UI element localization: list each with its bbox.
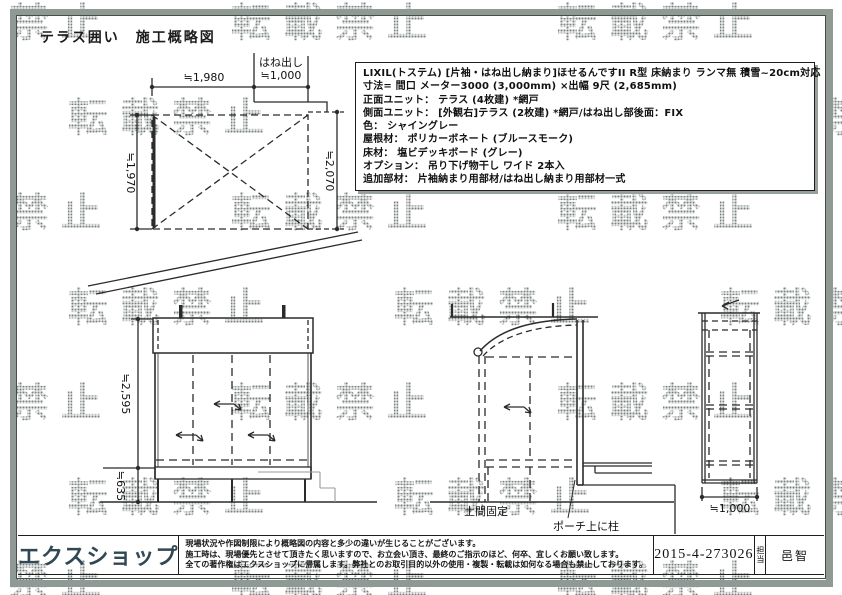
title-block: エクスショップ 現場状況や作図制限により概略図の内容と多少の違いが生じることがご…	[18, 535, 824, 575]
plan-overhang-label: はね出し	[259, 55, 303, 69]
spec-line: 側面ユニット： [外観右]テラス (2枚建) *網戸/はね出し部後面：FIX	[363, 107, 807, 120]
staff-label-cell: 担当	[755, 536, 766, 574]
staff-label: 担当	[755, 546, 765, 564]
rear-view-drawing	[698, 300, 760, 501]
front-height-upper-dim: ≒2,595	[119, 374, 132, 415]
staff-name: 邑智	[781, 547, 809, 564]
page-title: テラス囲い 施工概略図	[40, 27, 216, 47]
side-view-drawing	[430, 303, 675, 534]
spec-line: 床材： 塩ビデッキボード (グレー)	[363, 147, 807, 160]
order-number: 2015-4-273026	[654, 547, 753, 563]
side-ground-label: 土間固定	[464, 504, 508, 518]
front-elevation-drawing	[100, 305, 377, 504]
drawing-sheet: 転載禁止転載禁止転載禁止転載禁止転載禁止転載禁止転載禁止転載禁止転載禁止転載禁止…	[0, 0, 842, 595]
spec-line: LIXIL(トステム) [片袖・はね出し納まり]ほせるんですII R型 床納まり…	[363, 67, 807, 80]
rear-width-dim: ≒1,000	[710, 502, 751, 515]
spec-line: 追加部材： 片袖納まり用部材/はね出し納まり用部材一式	[363, 173, 807, 186]
disclaimer-line: 全ての著作権はエクスショップに帰属します。弊社とのお取引目的以外の使用・複製・転…	[185, 560, 647, 571]
logo-cell: エクスショップ	[18, 536, 179, 574]
product-spec-box: LIXIL(トステム) [片袖・はね出し納まり]ほせるんですII R型 床納まり…	[355, 62, 815, 191]
disclaimer-line: 施工時は、現場優先とさせて頂きたく思いますので、お立会い頂き、最終のご指示のほど…	[185, 550, 623, 561]
disclaimer-line: 現場状況や作図制限により概略図の内容と多少の違いが生じることがございます。	[185, 539, 480, 550]
staff-name-cell: 邑智	[766, 536, 824, 574]
plan-depth-left-dim: ≒1,970	[124, 153, 137, 194]
spec-line: 正面ユニット： テラス (4枚建) *網戸	[363, 94, 807, 107]
order-number-cell: 2015-4-273026	[654, 536, 755, 574]
disclaimer-cell: 現場状況や作図制限により概略図の内容と多少の違いが生じることがございます。施工時…	[179, 536, 654, 574]
spec-line: オプション： 吊り下げ物干し ワイド 2本入	[363, 160, 807, 173]
spec-line: 寸法= 間口 メーター3000 (3,000mm) ×出幅 9尺 (2,685m…	[363, 80, 807, 93]
plan-width-dim: ≒1,980	[184, 71, 225, 84]
spec-line: 屋根材： ポリカーボネート (ブルースモーク)	[363, 133, 807, 146]
plan-depth-right-dim: ≒2,070	[323, 151, 336, 192]
spec-line: 色： シャイングレー	[363, 120, 807, 133]
front-height-lower-dim: ≒635	[114, 471, 127, 501]
side-porch-label: ポーチ上に柱	[553, 519, 619, 533]
plan-overhang-dim: ≒1,000	[261, 69, 302, 82]
exsshop-logo: エクスショップ	[18, 539, 178, 571]
